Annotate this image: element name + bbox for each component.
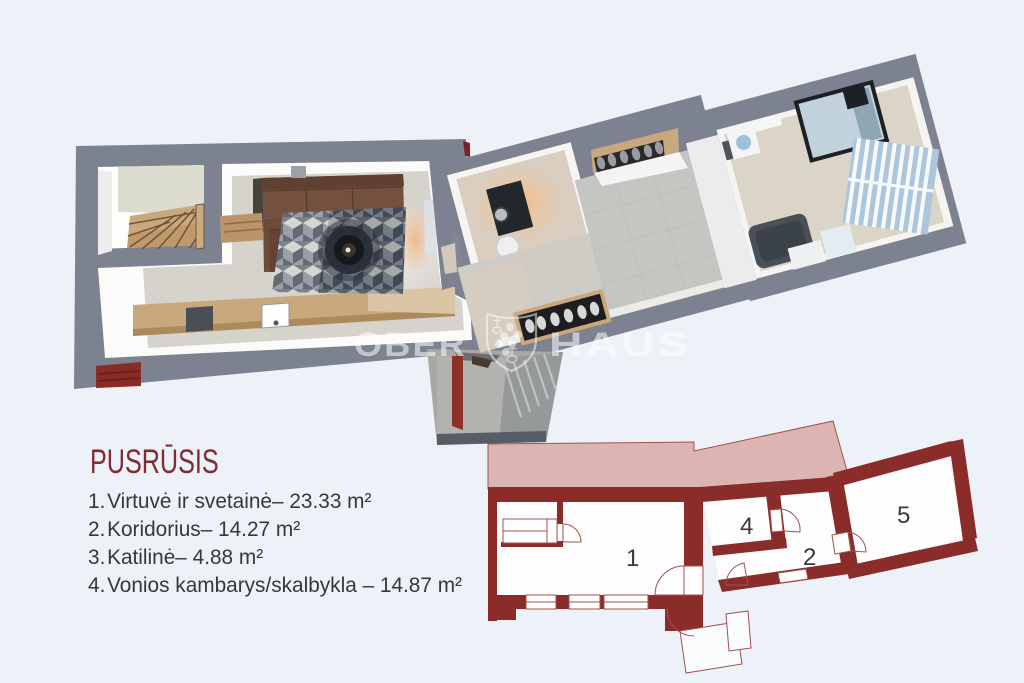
svg-text:2. Koridorius– 14.27 m²: 2. Koridorius– 14.27 m² bbox=[88, 518, 300, 541]
svg-text:5: 5 bbox=[897, 502, 910, 529]
svg-text:1: 1 bbox=[626, 545, 639, 572]
svg-text:PUSRŪSIS: PUSRŪSIS bbox=[90, 443, 219, 481]
svg-text:4. Vonios kambarys/skalbykla –: 4. Vonios kambarys/skalbykla – 14.87 m² bbox=[88, 574, 462, 597]
svg-text:2: 2 bbox=[803, 544, 816, 571]
svg-text:HAUS: HAUS bbox=[549, 326, 691, 364]
svg-text:3. Katilinė– 4.88 m²: 3. Katilinė– 4.88 m² bbox=[88, 546, 263, 569]
svg-text:OBER: OBER bbox=[354, 326, 467, 364]
svg-text:4: 4 bbox=[740, 513, 753, 540]
svg-text:1. Virtuvė ir svetainė– 23.33: 1. Virtuvė ir svetainė– 23.33 m² bbox=[88, 490, 371, 513]
